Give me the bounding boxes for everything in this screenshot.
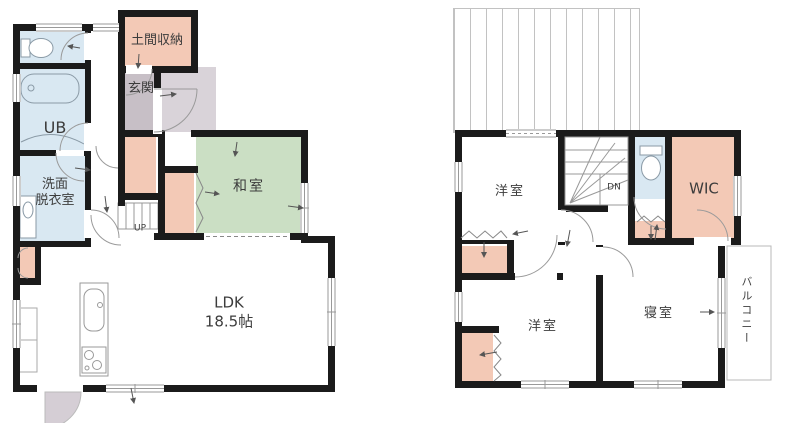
window xyxy=(12,300,21,348)
window xyxy=(521,380,569,389)
wall xyxy=(191,130,308,137)
wall xyxy=(158,166,198,173)
wall xyxy=(158,130,165,237)
door-gap xyxy=(126,65,152,74)
door-arc xyxy=(60,123,88,151)
washbasin-icon xyxy=(20,196,36,238)
wall xyxy=(507,240,514,280)
bifold-door xyxy=(461,231,507,238)
arrow xyxy=(160,94,176,96)
door-gap xyxy=(84,33,92,60)
wall xyxy=(455,381,725,388)
door-arc xyxy=(61,33,88,60)
wall xyxy=(455,326,499,333)
door-gap xyxy=(84,210,92,238)
toilet-icon-1f xyxy=(21,39,53,58)
door-arc xyxy=(91,210,119,238)
window xyxy=(36,23,82,32)
toilet-icon-2f xyxy=(640,146,662,180)
exit-door-swing xyxy=(45,392,81,423)
door-arc xyxy=(515,235,557,277)
wall xyxy=(13,241,91,247)
arrow xyxy=(68,46,80,48)
door-arc xyxy=(697,210,728,241)
wall xyxy=(118,10,198,17)
window xyxy=(327,278,336,346)
window xyxy=(634,380,682,389)
wall xyxy=(118,193,165,200)
arrow xyxy=(513,231,528,234)
door-gap xyxy=(694,237,731,246)
arrow xyxy=(567,230,570,246)
window xyxy=(454,162,463,192)
window xyxy=(717,278,726,348)
door-arc xyxy=(56,153,84,181)
bifold-door xyxy=(196,173,203,232)
balcony-outline xyxy=(727,246,771,380)
window xyxy=(454,292,463,322)
wall xyxy=(628,130,635,245)
window xyxy=(106,384,164,393)
doors-floor2 xyxy=(461,197,728,381)
arrow xyxy=(205,192,219,194)
cabinet-icon xyxy=(19,308,37,372)
walls-floor1 xyxy=(13,10,335,392)
window xyxy=(12,176,21,206)
wall xyxy=(455,130,741,137)
window xyxy=(12,74,21,102)
stairs-down xyxy=(565,137,628,205)
door-gap xyxy=(595,247,604,275)
door-arc xyxy=(603,247,633,277)
wall xyxy=(118,10,125,206)
wall xyxy=(191,10,198,70)
floorplan-linework xyxy=(0,0,787,423)
wall xyxy=(35,247,41,281)
kitchen-counter-icon xyxy=(80,283,108,376)
stairs-up xyxy=(118,203,158,229)
wall xyxy=(13,278,41,285)
door-arc xyxy=(91,215,121,245)
arrow xyxy=(105,196,107,212)
door-gap xyxy=(557,210,566,242)
arrow xyxy=(235,142,237,156)
door-arc xyxy=(634,197,666,229)
door-gap xyxy=(153,88,162,134)
floor-plan-canvas: 土間収納 玄関 UB 洗面 脱衣室 和室 LDK 18.5帖 UP 洋室 洋室 … xyxy=(0,0,787,423)
windows-floor1 xyxy=(12,23,336,393)
open-threshold xyxy=(204,233,290,240)
wall xyxy=(665,130,672,242)
door-gap xyxy=(84,123,92,151)
window xyxy=(93,23,119,32)
arrow xyxy=(480,352,497,355)
window xyxy=(506,129,556,138)
bathtub-icon xyxy=(21,74,84,144)
wall xyxy=(13,63,91,69)
bifold-door xyxy=(494,335,501,381)
door-arc xyxy=(96,146,118,168)
window xyxy=(733,176,742,216)
